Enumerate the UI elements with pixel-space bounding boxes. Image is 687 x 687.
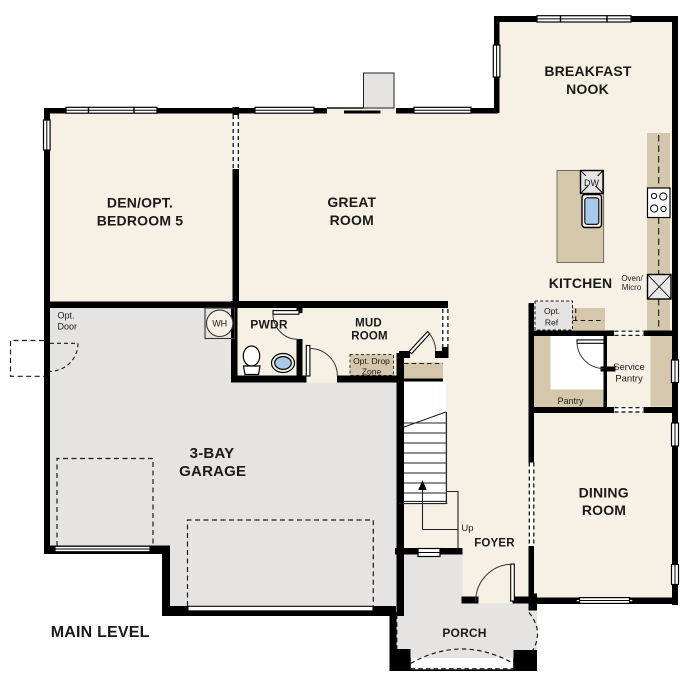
svg-text:3-BAY: 3-BAY (190, 445, 235, 462)
svg-text:Door: Door (58, 322, 78, 332)
svg-text:PWDR: PWDR (250, 318, 288, 332)
svg-text:Opt.: Opt. (58, 311, 75, 321)
svg-text:DW: DW (584, 178, 599, 188)
svg-text:Service: Service (613, 362, 645, 373)
svg-text:KITCHEN: KITCHEN (549, 275, 613, 291)
svg-text:ROOM: ROOM (330, 212, 374, 228)
svg-text:Up: Up (461, 523, 473, 534)
svg-text:Pantry: Pantry (615, 374, 643, 385)
svg-text:MUD: MUD (355, 318, 382, 330)
svg-text:ROOM: ROOM (351, 331, 388, 343)
svg-text:BREAKFAST: BREAKFAST (544, 63, 632, 79)
svg-text:PORCH: PORCH (442, 626, 486, 640)
svg-text:GARAGE: GARAGE (179, 463, 246, 480)
svg-text:Pantry: Pantry (557, 396, 584, 406)
svg-text:NOOK: NOOK (566, 81, 609, 97)
svg-text:Opt.: Opt. (544, 306, 560, 316)
svg-text:GREAT: GREAT (327, 194, 376, 210)
svg-text:DINING: DINING (579, 485, 629, 501)
svg-text:MAIN LEVEL: MAIN LEVEL (51, 624, 150, 641)
svg-text:Zone: Zone (362, 367, 382, 377)
svg-text:FOYER: FOYER (474, 538, 515, 550)
svg-text:Ref: Ref (545, 318, 559, 328)
svg-text:DEN/OPT.: DEN/OPT. (107, 195, 173, 211)
svg-text:ROOM: ROOM (582, 502, 626, 518)
svg-text:WH: WH (212, 319, 227, 329)
svg-text:Opt. Drop: Opt. Drop (353, 356, 390, 366)
svg-text:Micro: Micro (622, 283, 642, 292)
svg-text:BEDROOM 5: BEDROOM 5 (97, 213, 184, 229)
svg-text:Oven/: Oven/ (621, 274, 643, 283)
